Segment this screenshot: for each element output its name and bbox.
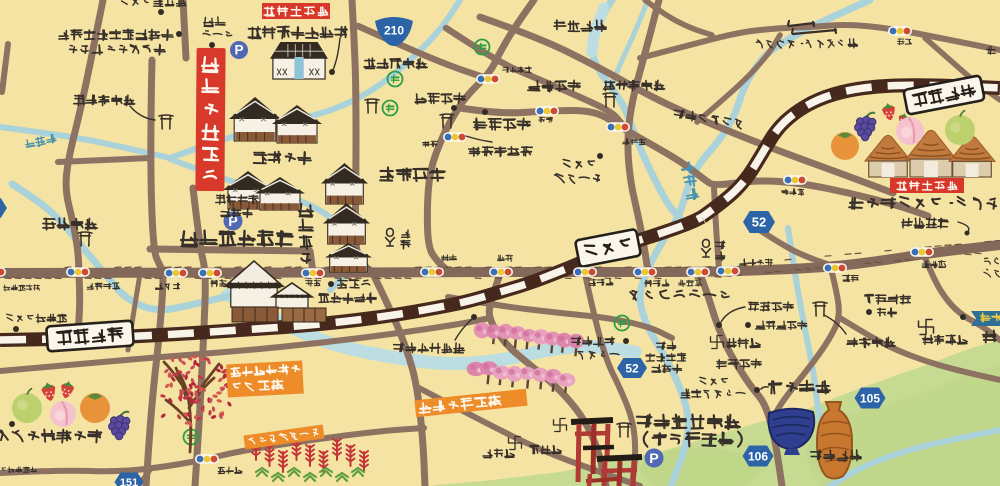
svg-text:P: P xyxy=(649,451,658,467)
svg-text:105: 105 xyxy=(860,391,880,405)
svg-text:52: 52 xyxy=(625,361,639,375)
svg-text:P: P xyxy=(234,43,243,58)
svg-text:52: 52 xyxy=(752,215,766,230)
svg-text:151: 151 xyxy=(120,477,138,486)
svg-text:106: 106 xyxy=(748,449,768,463)
svg-text:210: 210 xyxy=(384,24,404,38)
